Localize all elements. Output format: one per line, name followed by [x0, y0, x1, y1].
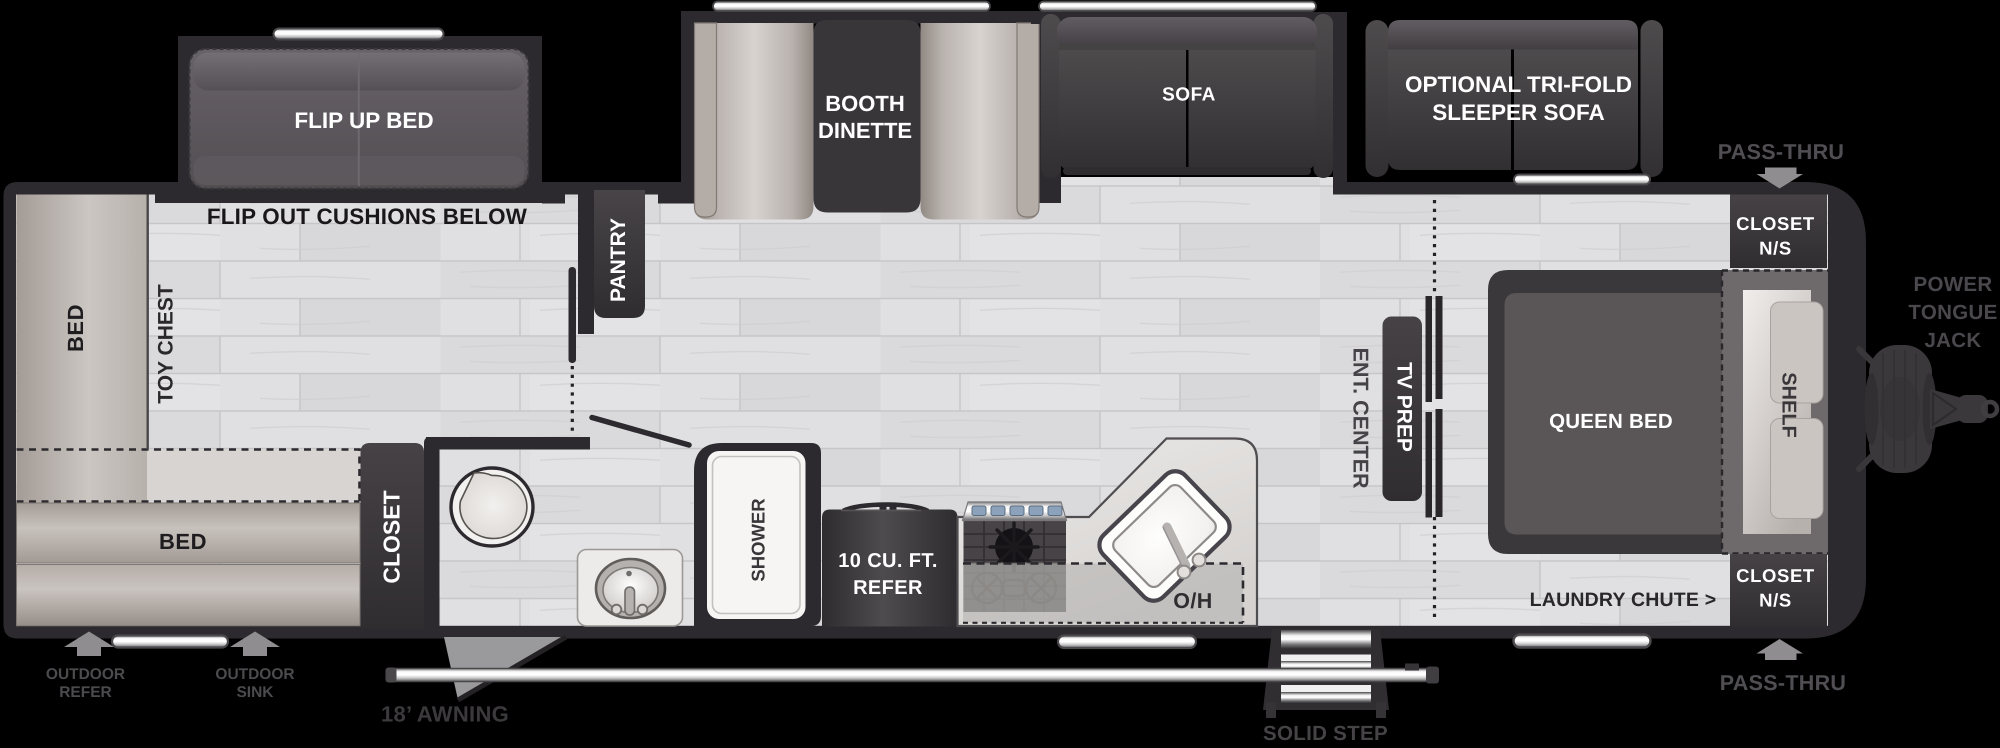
- svg-text:QUEEN BED: QUEEN BED: [1549, 410, 1673, 433]
- svg-text:TV PREP: TV PREP: [1392, 362, 1415, 452]
- svg-text:TONGUE: TONGUE: [1908, 301, 1997, 324]
- svg-text:SOFA: SOFA: [1162, 85, 1216, 106]
- svg-text:CLOSET: CLOSET: [379, 490, 405, 583]
- svg-text:FLIP OUT CUSHIONS BELOW: FLIP OUT CUSHIONS BELOW: [207, 204, 528, 229]
- svg-text:PANTRY: PANTRY: [607, 218, 630, 302]
- svg-text:PASS-THRU: PASS-THRU: [1720, 671, 1847, 695]
- svg-text:18’ AWNING: 18’ AWNING: [381, 702, 509, 727]
- svg-text:O/H: O/H: [1173, 589, 1212, 613]
- svg-text:BOOTH: BOOTH: [825, 91, 904, 116]
- svg-text:OUTDOOR: OUTDOOR: [46, 666, 125, 683]
- svg-text:OPTIONAL TRI-FOLD: OPTIONAL TRI-FOLD: [1405, 72, 1632, 97]
- svg-text:CLOSET: CLOSET: [1736, 565, 1815, 586]
- svg-text:LAUNDRY CHUTE >: LAUNDRY CHUTE >: [1530, 589, 1717, 611]
- svg-text:REFER: REFER: [59, 684, 112, 701]
- svg-text:SLEEPER SOFA: SLEEPER SOFA: [1432, 100, 1605, 125]
- svg-text:10 CU. FT.: 10 CU. FT.: [838, 550, 938, 572]
- svg-text:SHELF: SHELF: [1778, 372, 1800, 438]
- svg-text:BED: BED: [159, 529, 207, 554]
- svg-text:POWER: POWER: [1914, 273, 1993, 296]
- svg-text:BED: BED: [63, 304, 88, 352]
- svg-text:DINETTE: DINETTE: [818, 118, 912, 143]
- svg-text:SHOWER: SHOWER: [747, 498, 768, 581]
- svg-text:ENT. CENTER: ENT. CENTER: [1348, 348, 1372, 489]
- svg-text:N/S: N/S: [1759, 238, 1792, 259]
- svg-text:PASS-THRU: PASS-THRU: [1718, 140, 1845, 164]
- svg-text:REFER: REFER: [853, 577, 923, 599]
- svg-text:TOY CHEST: TOY CHEST: [155, 284, 178, 404]
- svg-text:N/S: N/S: [1759, 590, 1792, 611]
- svg-text:JACK: JACK: [1924, 329, 1981, 352]
- svg-text:OUTDOOR: OUTDOOR: [215, 666, 294, 683]
- svg-text:SINK: SINK: [236, 684, 274, 701]
- svg-text:SOLID STEP: SOLID STEP: [1263, 722, 1388, 745]
- svg-text:FLIP UP BED: FLIP UP BED: [294, 108, 433, 133]
- svg-text:CLOSET: CLOSET: [1736, 213, 1815, 234]
